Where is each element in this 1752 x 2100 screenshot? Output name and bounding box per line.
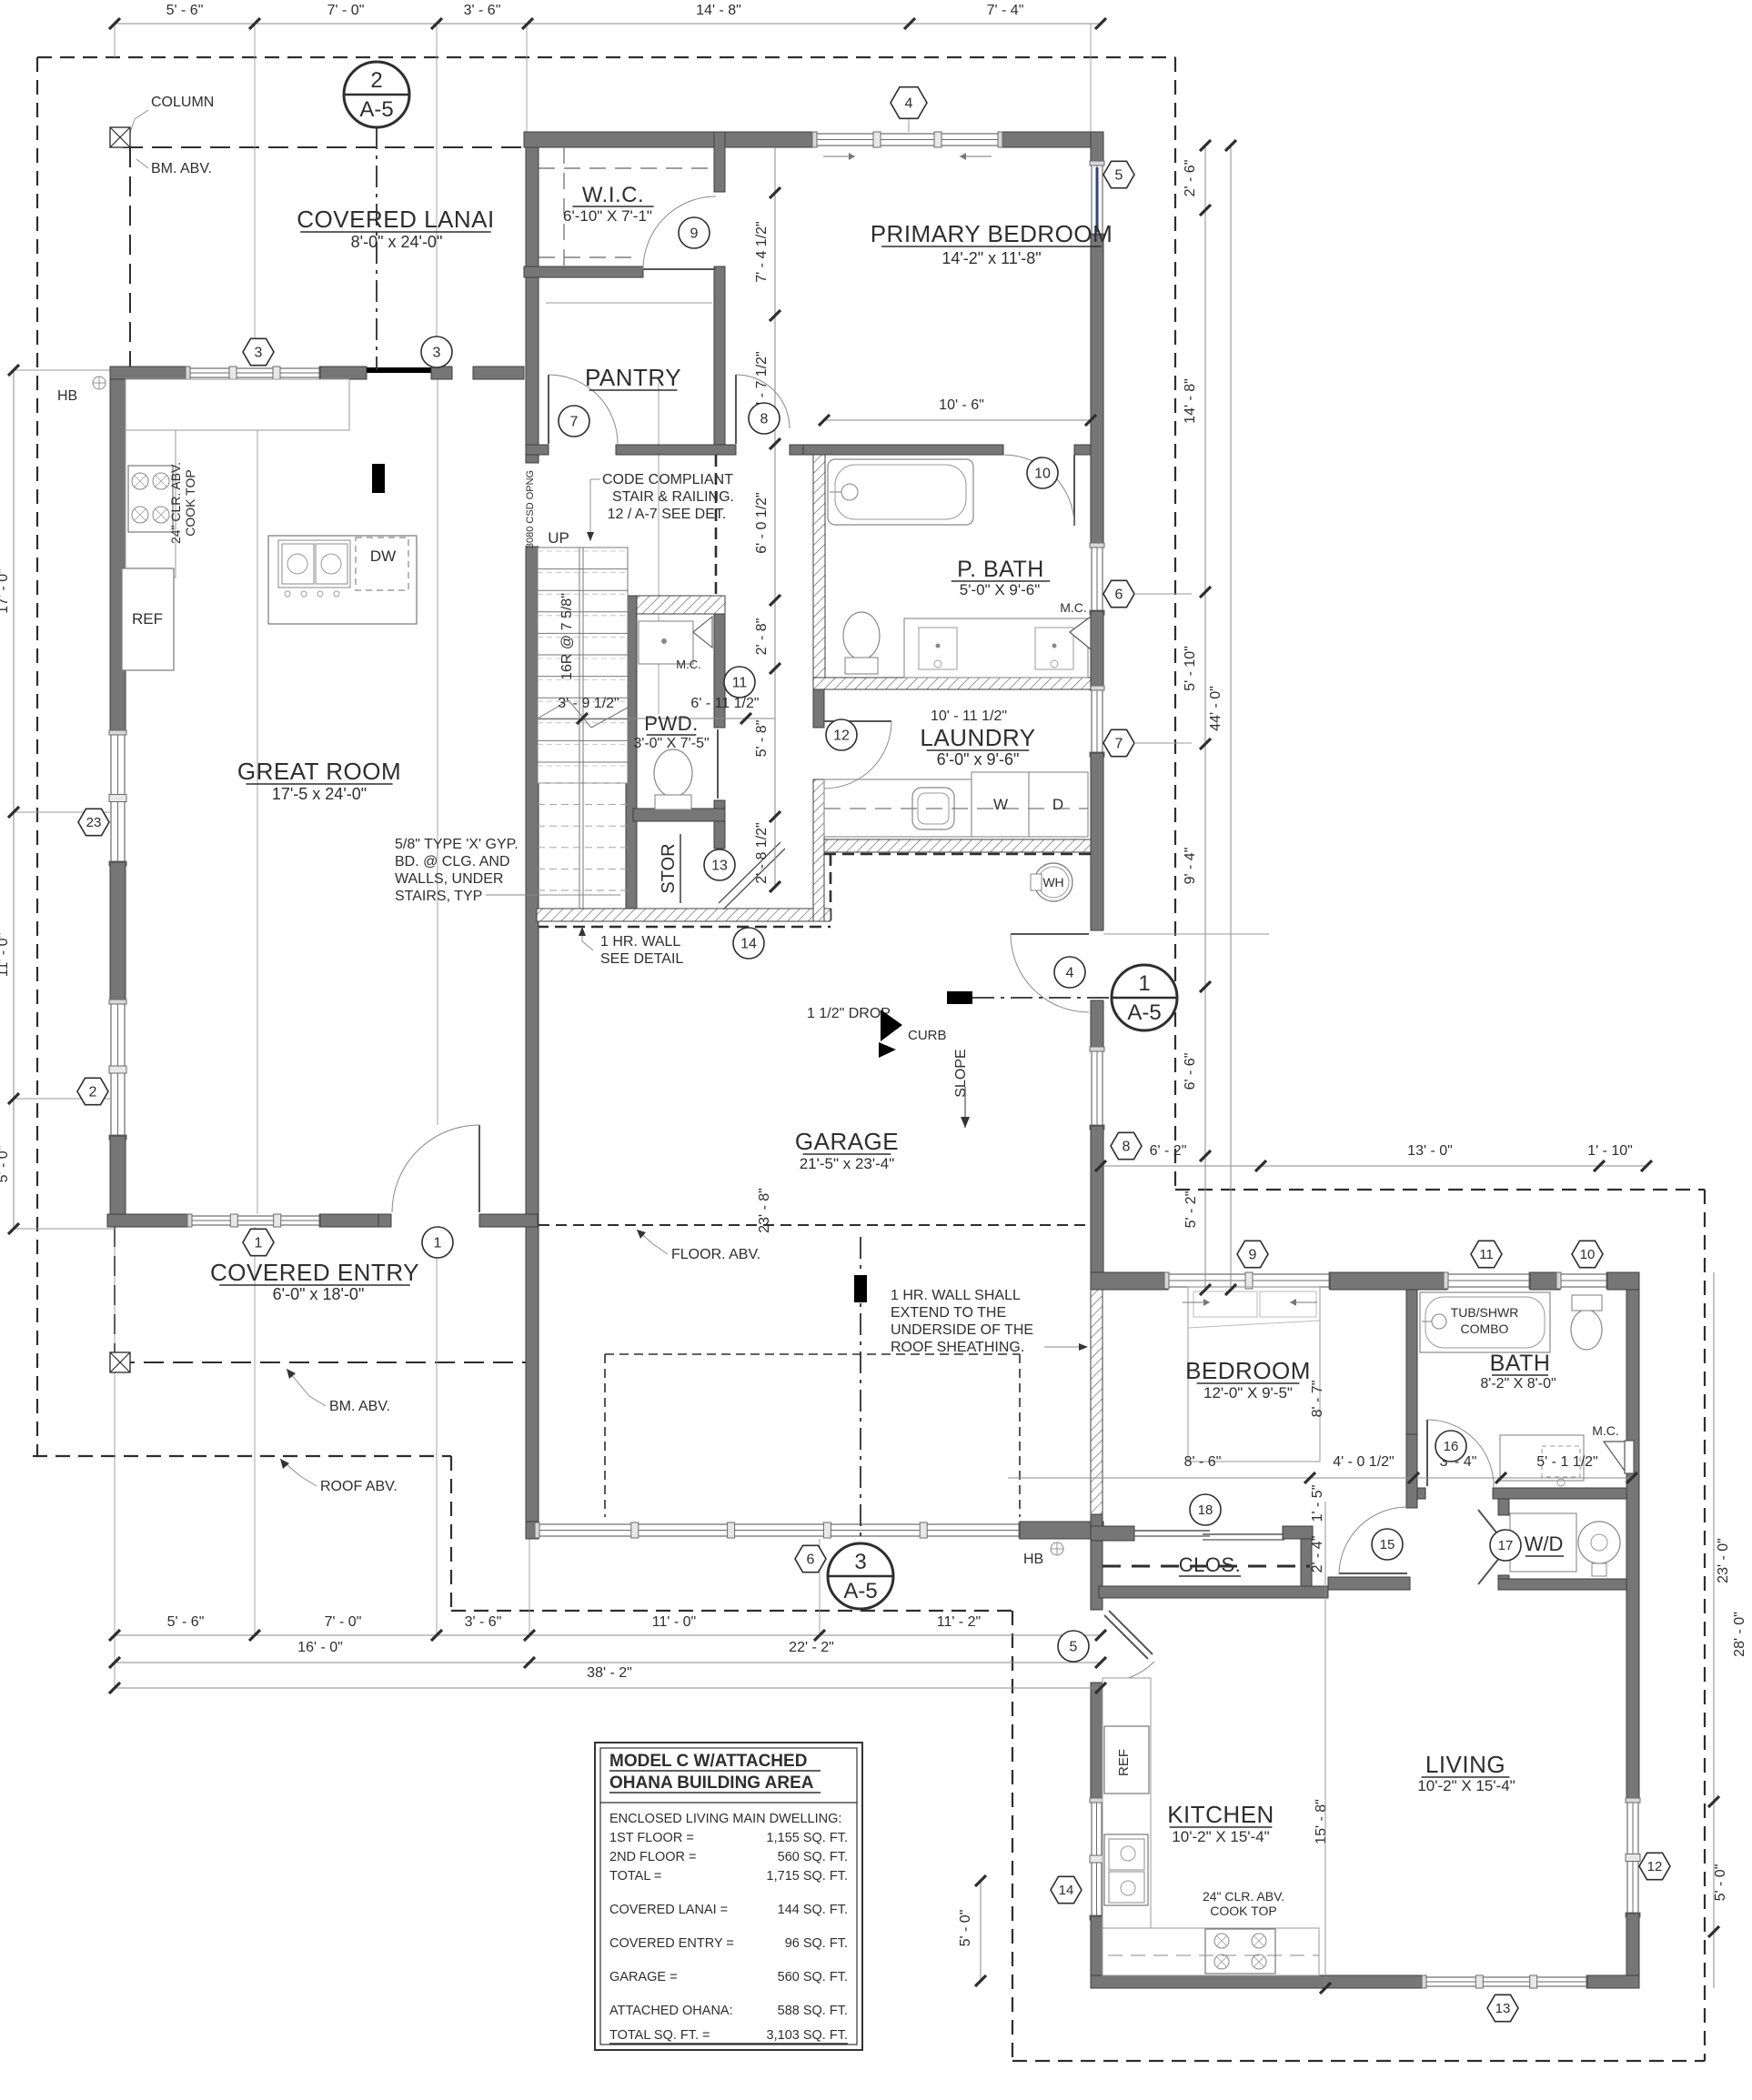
svg-text:5' - 1 1/2": 5' - 1 1/2" [1536,1454,1597,1470]
svg-text:11' - 2": 11' - 2" [937,1614,981,1630]
svg-text:HB: HB [57,388,77,404]
svg-text:BM. ABV.: BM. ABV. [151,161,212,176]
svg-text:PRIMARY BEDROOM: PRIMARY BEDROOM [871,220,1113,247]
svg-text:12'-0" X 9'-5": 12'-0" X 9'-5" [1203,1384,1293,1402]
svg-text:144 SQ. FT.: 144 SQ. FT. [778,1903,848,1917]
svg-text:4: 4 [905,96,913,112]
svg-text:6' - 0 1/2": 6' - 0 1/2" [754,492,770,553]
svg-text:3' - 6": 3' - 6" [465,1614,502,1630]
svg-text:14' - 8": 14' - 8" [1183,378,1198,424]
svg-text:A-5: A-5 [359,97,393,122]
svg-text:3: 3 [255,346,263,361]
svg-text:23' - 0": 23' - 0" [1716,1538,1731,1583]
svg-text:WH: WH [1042,875,1063,889]
svg-text:38' - 2": 38' - 2" [587,1665,632,1681]
svg-text:2: 2 [89,1085,97,1100]
svg-text:SLOPE: SLOPE [953,1049,969,1097]
svg-text:11: 11 [732,676,748,691]
svg-text:6'-0" x 18'-0": 6'-0" x 18'-0" [273,1285,365,1303]
svg-text:7' - 4": 7' - 4" [987,3,1024,18]
svg-text:12 / A-7 SEE DET.: 12 / A-7 SEE DET. [608,507,727,522]
svg-text:UP: UP [548,529,569,547]
svg-text:D: D [1052,796,1063,813]
svg-text:16' - 0": 16' - 0" [297,1640,343,1655]
svg-text:W: W [993,796,1008,813]
svg-text:REF: REF [1116,1749,1132,1776]
svg-text:9: 9 [690,226,699,242]
svg-text:LIVING: LIVING [1425,1751,1505,1778]
svg-text:15' - 8": 15' - 8" [1314,1799,1329,1844]
svg-text:TUB/SHWR: TUB/SHWR [1451,1305,1519,1320]
svg-text:14'-2" x 11'-8": 14'-2" x 11'-8" [941,249,1041,267]
svg-text:ATTACHED OHANA:: ATTACHED OHANA: [609,2004,733,2018]
svg-text:TOTAL SQ. FT. =: TOTAL SQ. FT. = [609,2028,710,2043]
svg-text:1: 1 [434,1236,442,1251]
svg-text:CODE COMPLIANT: CODE COMPLIANT [602,472,733,487]
svg-text:2ND FLOOR =: 2ND FLOOR = [609,1850,696,1864]
svg-text:COOK TOP: COOK TOP [183,469,197,536]
svg-text:5' - 6": 5' - 6" [166,3,204,18]
svg-text:5: 5 [1070,1640,1078,1655]
svg-text:ENCLOSED LIVING MAIN DWELLING:: ENCLOSED LIVING MAIN DWELLING: [609,1812,841,1826]
svg-text:M.C.: M.C. [676,658,700,671]
svg-text:8'-2" X 8'-0": 8'-2" X 8'-0" [1480,1376,1556,1392]
svg-text:2' - 8": 2' - 8" [754,618,770,656]
svg-text:COVERED ENTRY =: COVERED ENTRY = [609,1936,734,1951]
svg-text:1,155 SQ. FT.: 1,155 SQ. FT. [767,1831,848,1845]
svg-text:A-5: A-5 [1127,1000,1161,1025]
svg-text:11: 11 [1479,1247,1494,1262]
svg-text:5' - 6": 5' - 6" [167,1614,205,1630]
svg-text:12: 12 [1647,1859,1663,1874]
svg-text:8: 8 [1123,1140,1131,1155]
svg-text:P. BATH: P. BATH [957,557,1044,582]
svg-text:1 HR. WALL SHALL: 1 HR. WALL SHALL [891,1288,1021,1303]
svg-text:1' - 10": 1' - 10" [1587,1143,1633,1159]
svg-text:COVERED ENTRY: COVERED ENTRY [210,1259,419,1286]
svg-text:6' - 6": 6' - 6" [1183,1053,1198,1090]
svg-text:3,103 SQ. FT.: 3,103 SQ. FT. [767,2028,848,2043]
svg-text:7' - 4 1/2": 7' - 4 1/2" [754,221,770,282]
svg-text:3' - 6": 3' - 6" [464,3,501,18]
svg-text:17' - 0": 17' - 0" [0,568,11,614]
svg-text:7: 7 [570,415,579,430]
svg-text:MODEL C W/ATTACHED: MODEL C W/ATTACHED [609,1752,807,1771]
svg-text:3: 3 [433,346,441,361]
svg-text:14' - 8": 14' - 8" [696,3,741,18]
svg-text:EXTEND TO THE: EXTEND TO THE [891,1305,1006,1321]
svg-text:UNDERSIDE OF THE: UNDERSIDE OF THE [891,1322,1033,1338]
svg-text:A-5: A-5 [843,1579,877,1603]
svg-text:96 SQ. FT.: 96 SQ. FT. [785,1936,848,1951]
svg-text:10' - 11 1/2": 10' - 11 1/2" [931,708,1007,724]
svg-text:COOK TOP: COOK TOP [1210,1904,1276,1918]
svg-text:WALLS, UNDER: WALLS, UNDER [395,871,503,887]
svg-text:10'-2" X 15'-4": 10'-2" X 15'-4" [1417,1777,1515,1794]
svg-text:2' - 4": 2' - 4" [1310,1536,1325,1573]
svg-text:M.C.: M.C. [1060,600,1087,615]
svg-text:9' - 4": 9' - 4" [1183,848,1198,885]
svg-text:8' - 6": 8' - 6" [1184,1454,1222,1470]
svg-text:2' - 8 1/2": 2' - 8 1/2" [754,822,770,883]
svg-text:GARAGE: GARAGE [795,1128,899,1155]
svg-text:5' - 10": 5' - 10" [1183,646,1198,691]
svg-text:16: 16 [1444,1439,1459,1454]
svg-text:W.I.C.: W.I.C. [582,183,644,207]
svg-text:COLUMN: COLUMN [151,95,214,110]
svg-text:COVERED LANAI: COVERED LANAI [297,206,494,233]
svg-text:REF: REF [132,610,163,628]
svg-text:ROOF SHEATHING.: ROOF SHEATHING. [891,1340,1024,1355]
svg-text:GREAT ROOM: GREAT ROOM [237,758,401,785]
svg-text:BD. @ CLG. AND: BD. @ CLG. AND [395,854,510,869]
svg-text:11' - 0": 11' - 0" [652,1614,696,1630]
svg-text:28' - 0": 28' - 0" [1732,1612,1747,1657]
svg-text:1' - 5": 1' - 5" [1310,1485,1325,1522]
svg-text:1 1/2" DROP: 1 1/2" DROP [807,1006,891,1021]
svg-text:23: 23 [86,815,102,830]
svg-text:13' - 0": 13' - 0" [1407,1143,1453,1159]
svg-text:STAIRS, TYP: STAIRS, TYP [395,889,482,904]
svg-text:DW: DW [370,548,396,565]
svg-text:COVERED LANAI =: COVERED LANAI = [609,1903,728,1917]
svg-text:W/D: W/D [1525,1532,1564,1555]
svg-text:8: 8 [760,412,769,427]
svg-text:7: 7 [1115,737,1123,752]
svg-text:5: 5 [1115,168,1123,184]
svg-text:14: 14 [1059,1883,1074,1898]
svg-text:TOTAL =: TOTAL = [609,1869,661,1884]
svg-text:15: 15 [1380,1537,1395,1552]
svg-text:13: 13 [1495,2001,1511,2016]
svg-text:5'-0" X 9'-6": 5'-0" X 9'-6" [960,581,1041,598]
svg-text:M.C.: M.C. [1592,1423,1619,1438]
svg-text:3080 CSD OPNG: 3080 CSD OPNG [525,470,536,548]
svg-text:23' - 8": 23' - 8" [757,1188,772,1233]
svg-text:1 HR. WALL: 1 HR. WALL [600,934,680,950]
svg-text:5' - 8": 5' - 8" [754,720,770,758]
svg-text:BM. ABV.: BM. ABV. [329,1399,390,1414]
svg-text:5' - 2": 5' - 2" [1183,1191,1199,1229]
svg-text:6' - 11 1/2": 6' - 11 1/2" [690,696,759,711]
svg-text:FLOOR. ABV.: FLOOR. ABV. [671,1247,760,1262]
svg-text:5' - 0": 5' - 0" [1713,1864,1728,1902]
svg-text:1,715 SQ. FT.: 1,715 SQ. FT. [767,1869,848,1884]
svg-text:588 SQ. FT.: 588 SQ. FT. [778,2004,848,2018]
svg-text:6'-0" x 9'-6": 6'-0" x 9'-6" [937,750,1020,769]
svg-text:4: 4 [1066,966,1074,981]
svg-text:8' - 7": 8' - 7" [1310,1381,1325,1418]
svg-text:6' - 2": 6' - 2" [1150,1143,1187,1159]
svg-text:10: 10 [1580,1247,1596,1262]
svg-text:5/8" TYPE 'X' GYP.: 5/8" TYPE 'X' GYP. [395,837,519,852]
svg-text:1: 1 [1138,971,1150,996]
svg-text:PWD.: PWD. [644,712,698,735]
svg-text:9: 9 [1249,1248,1257,1263]
svg-text:ROOF ABV.: ROOF ABV. [320,1479,398,1494]
svg-text:7' - 0": 7' - 0" [327,3,365,18]
svg-text:3' - 9 1/2": 3' - 9 1/2" [558,696,619,711]
svg-text:3: 3 [854,1550,866,1574]
svg-text:24" CLR. ABV.: 24" CLR. ABV. [168,462,183,544]
svg-text:5' - 0": 5' - 0" [0,1146,11,1183]
svg-text:10'-2" X 15'-4": 10'-2" X 15'-4" [1172,1828,1269,1845]
svg-text:1: 1 [255,1236,263,1251]
svg-text:6: 6 [807,1552,815,1568]
svg-text:10: 10 [1034,467,1051,482]
svg-text:17'-5 x 24'-0": 17'-5 x 24'-0" [272,785,367,803]
svg-text:SEE DETAIL: SEE DETAIL [600,951,683,967]
svg-text:11' - 0": 11' - 0" [0,933,11,977]
svg-text:CURB: CURB [908,1028,947,1043]
svg-text:OHANA BUILDING AREA: OHANA BUILDING AREA [609,1773,814,1793]
svg-text:5' - 0": 5' - 0" [958,1910,973,1947]
svg-text:14: 14 [740,937,757,952]
svg-text:6: 6 [1115,588,1123,603]
svg-text:STAIR & RAILING.: STAIR & RAILING. [612,489,734,505]
svg-text:BATH: BATH [1490,1351,1551,1376]
svg-text:4' - 0 1/2": 4' - 0 1/2" [1333,1454,1394,1470]
svg-text:1ST FLOOR =: 1ST FLOOR = [609,1831,694,1845]
svg-text:16R @ 7 5/8": 16R @ 7 5/8" [559,593,575,680]
svg-text:24" CLR. ABV.: 24" CLR. ABV. [1203,1889,1284,1904]
svg-text:2: 2 [370,68,382,93]
svg-text:2' - 6": 2' - 6" [1183,160,1198,197]
svg-text:17: 17 [1498,1538,1514,1553]
svg-text:560 SQ. FT.: 560 SQ. FT. [778,1850,848,1864]
svg-text:GARAGE =: GARAGE = [609,1970,678,1984]
svg-text:13: 13 [711,859,728,874]
svg-text:44' - 0": 44' - 0" [1208,686,1223,731]
svg-text:22' - 2": 22' - 2" [789,1640,834,1655]
svg-text:18: 18 [1198,1502,1213,1518]
svg-text:12: 12 [833,728,850,744]
svg-text:HB: HB [1023,1552,1043,1567]
svg-text:LAUNDRY: LAUNDRY [920,724,1035,751]
svg-text:PANTRY: PANTRY [585,364,681,391]
svg-text:21'-5" x 23'-4": 21'-5" x 23'-4" [800,1155,895,1172]
svg-text:COMBO: COMBO [1461,1321,1509,1336]
svg-text:6'-10" X 7'-1": 6'-10" X 7'-1" [563,207,652,225]
svg-text:STOR: STOR [659,843,679,893]
svg-text:KITCHEN: KITCHEN [1167,1801,1274,1828]
svg-text:7' - 0": 7' - 0" [325,1614,362,1630]
svg-text:10' - 6": 10' - 6" [939,397,984,413]
svg-text:CLOS.: CLOS. [1179,1553,1242,1576]
svg-text:560 SQ. FT.: 560 SQ. FT. [778,1970,848,1984]
svg-text:8'-0" x 24'-0": 8'-0" x 24'-0" [351,233,443,251]
svg-text:3'-0" X 7'-5": 3'-0" X 7'-5" [633,736,709,751]
svg-text:BEDROOM: BEDROOM [1185,1357,1311,1384]
